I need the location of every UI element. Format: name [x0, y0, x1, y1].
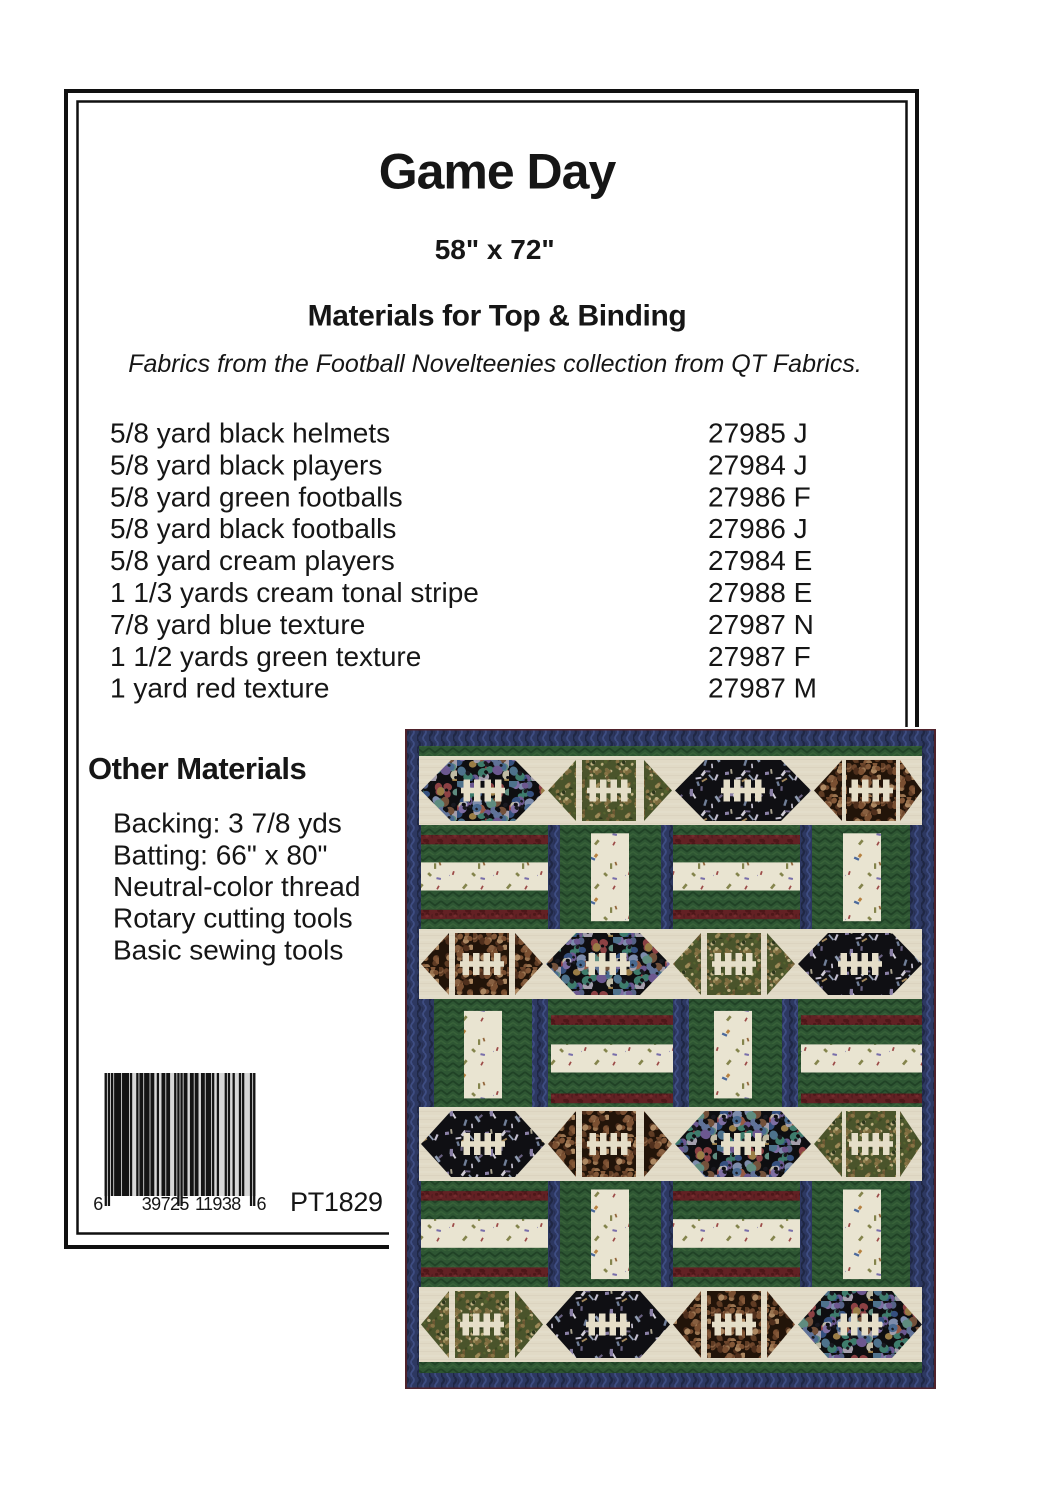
svg-text:27987 F: 27987 F	[708, 641, 811, 672]
svg-text:1 1/2 yards green texture: 1 1/2 yards green texture	[110, 641, 421, 672]
svg-text:6: 6	[93, 1194, 103, 1214]
svg-text:Fabrics from the Football Nove: Fabrics from the Football Novelteenies c…	[128, 350, 862, 378]
svg-text:5/8 yard green footballs: 5/8 yard green footballs	[110, 481, 403, 512]
svg-text:Other Materials: Other Materials	[88, 751, 306, 786]
svg-text:58" x 72": 58" x 72"	[435, 234, 555, 265]
svg-text:39725: 39725	[142, 1194, 190, 1214]
svg-text:Game Day: Game Day	[379, 144, 617, 200]
svg-text:27984 J: 27984 J	[708, 449, 808, 480]
svg-text:5/8 yard cream players: 5/8 yard cream players	[110, 545, 395, 576]
svg-text:27986 J: 27986 J	[708, 513, 808, 544]
svg-text:1 1/3 yards cream tonal stripe: 1 1/3 yards cream tonal stripe	[110, 577, 479, 608]
svg-text:Backing: 3 7/8 yds: Backing: 3 7/8 yds	[113, 808, 342, 839]
svg-text:6: 6	[256, 1194, 266, 1214]
svg-text:Neutral-color thread: Neutral-color thread	[113, 871, 360, 902]
svg-text:27987 M: 27987 M	[708, 673, 817, 704]
svg-text:27987 N: 27987 N	[708, 609, 814, 640]
svg-text:Basic sewing tools: Basic sewing tools	[113, 935, 343, 966]
svg-text:Batting: 66" x 80": Batting: 66" x 80"	[113, 840, 327, 871]
svg-text:1 yard red texture: 1 yard red texture	[110, 673, 329, 704]
svg-text:Rotary cutting tools: Rotary cutting tools	[113, 903, 353, 934]
svg-text:27988 E: 27988 E	[708, 577, 812, 608]
svg-text:5/8 yard black footballs: 5/8 yard black footballs	[110, 513, 396, 544]
svg-text:27984 E: 27984 E	[708, 545, 812, 576]
svg-text:27986 F: 27986 F	[708, 481, 811, 512]
svg-text:5/8 yard black helmets: 5/8 yard black helmets	[110, 418, 390, 449]
svg-text:PT1829: PT1829	[290, 1187, 383, 1217]
svg-text:Materials for Top & Binding: Materials for Top & Binding	[308, 299, 687, 332]
svg-text:7/8 yard blue texture: 7/8 yard blue texture	[110, 609, 365, 640]
svg-text:27985 J: 27985 J	[708, 418, 808, 449]
svg-text:5/8 yard black players: 5/8 yard black players	[110, 449, 382, 480]
svg-text:11938: 11938	[195, 1194, 241, 1214]
